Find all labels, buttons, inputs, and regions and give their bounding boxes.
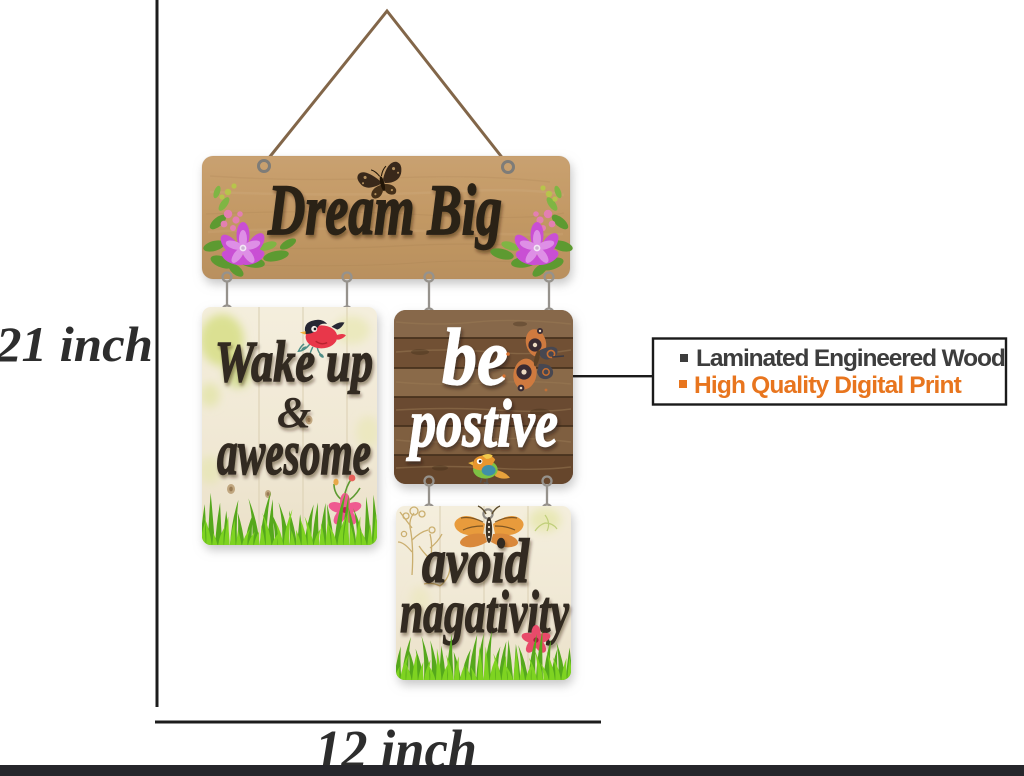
svg-text:Wake up: Wake up	[215, 329, 373, 394]
svg-text:postive: postive	[406, 385, 558, 461]
svg-text:21 inch: 21 inch	[0, 316, 153, 372]
svg-text:awesome: awesome	[217, 417, 371, 488]
svg-text:High Quality Digital Print: High Quality Digital Print	[694, 372, 962, 399]
svg-text:Laminated Engineered Wood: Laminated Engineered Wood	[696, 345, 1006, 372]
